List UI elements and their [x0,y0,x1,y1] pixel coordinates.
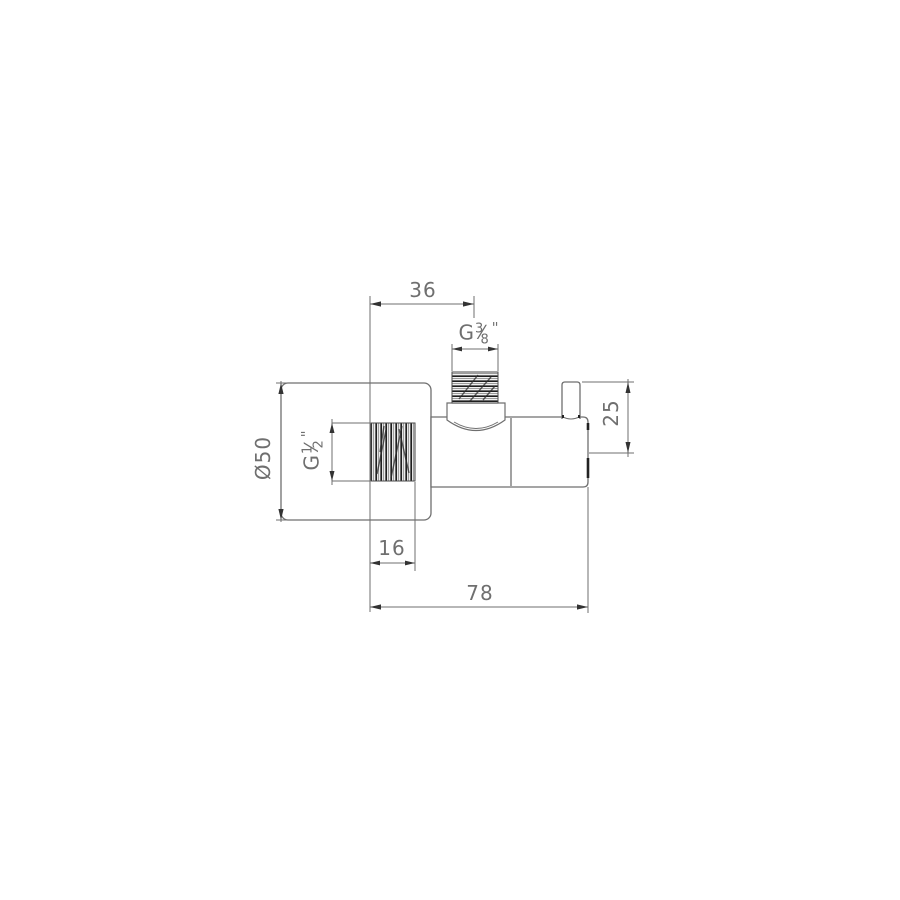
dim-label-top-offset: 36 [409,280,436,300]
thread-prefix: G [300,455,324,471]
valve-body [431,417,588,487]
dim-label-total-depth: 78 [466,583,493,603]
handle-stem [562,382,580,419]
dim-label-side-thread: G1⁄2'' [302,434,323,471]
thread-prefix: G [459,321,475,345]
technical-drawing-page: 36 G3⁄8'' Ø50 G1⁄2'' 25 16 78 [0,0,900,900]
dim-label-top-thread: G3⁄8'' [459,323,496,344]
dim-label-thread-depth: 16 [378,538,405,558]
valve-drawing-canvas [0,0,900,900]
thread-suffix: '' [492,321,498,337]
side-thread-hatch [371,423,415,481]
dim-label-handle-height: 25 [601,399,621,426]
dim-label-flange-diameter: Ø50 [253,436,273,480]
top-thread-hatch [452,372,498,403]
thread-denominator: 8 [480,333,488,348]
thread-suffix: '' [300,432,316,438]
thread-denominator: 2 [312,440,327,448]
